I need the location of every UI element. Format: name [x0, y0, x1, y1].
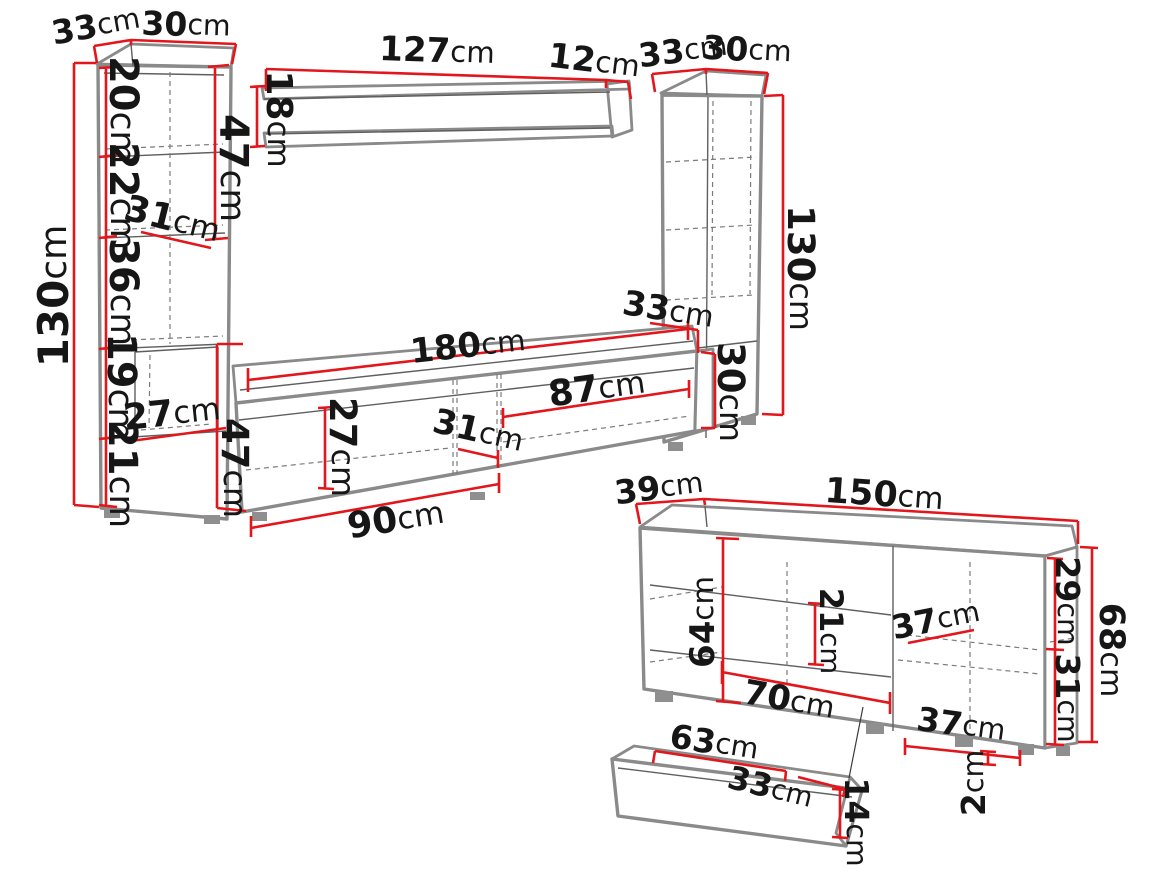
dim-right-cabinet-height: 130cm: [780, 205, 823, 331]
dim-sideboard-inner-height: 64cm: [683, 576, 723, 668]
dim-tv-stand-height: 47cm: [214, 418, 257, 518]
dim-sideboard-height: 68cm: [1091, 603, 1131, 698]
diagram-canvas: 33cm 30cm 130cm 20cm 22cm 36cm 19cm 21cm…: [0, 0, 1166, 875]
dim-left-cabinet-top-width: 30cm: [141, 3, 231, 45]
dim-sideboard-depth: 39cm: [612, 462, 705, 512]
dim-wall-shelf-length: 127cm: [379, 28, 496, 72]
dim-tv-stand-inner-height: 27cm: [322, 397, 365, 497]
dim-wall-shelf-height: 18cm: [258, 70, 299, 167]
dim-sideboard-lower-section: 31cm: [1049, 653, 1088, 742]
right-cabinet-top-face: [661, 71, 766, 96]
dim-drawer-height: 14cm: [838, 777, 877, 866]
dim-left-cabinet-height: 130cm: [29, 225, 78, 368]
dim-tv-stand-left-section: 90cm: [345, 492, 447, 548]
furniture-dimension-diagram: 33cm 30cm 130cm 20cm 22cm 36cm 19cm 21cm…: [0, 0, 1166, 875]
dim-sideboard-upper-section: 29cm: [1049, 556, 1088, 645]
dim-right-cabinet-top-width: 30cm: [702, 27, 793, 71]
dim-sideboard-shelf-spacing: 21cm: [812, 588, 850, 674]
dim-left-cabinet-upper-door-height: 47cm: [210, 114, 256, 222]
dim-sideboard-width: 150cm: [823, 471, 944, 519]
dim-sideboard-leg-height: 2cm: [954, 750, 993, 816]
wall-shelf-drawing: [262, 81, 632, 147]
dim-left-cabinet-section-3: 36cm: [100, 238, 146, 346]
wall-shelf-boards: [262, 81, 632, 147]
dim-tv-stand-right-height: 30cm: [710, 342, 753, 442]
